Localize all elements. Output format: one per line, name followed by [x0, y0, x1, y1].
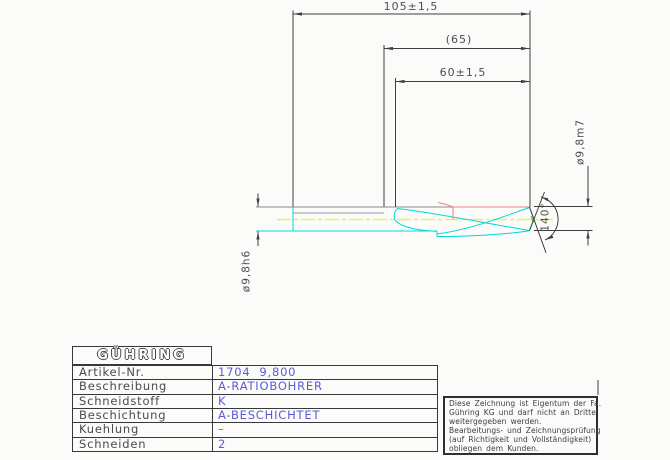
row-label-kuehlung: Kuehlung [73, 423, 213, 436]
row-label-schneiden: Schneiden [73, 438, 213, 451]
dim-flute-length: 60±1,5 [430, 67, 496, 79]
note-line: obliegen dem Kunden. [449, 445, 593, 454]
table-row: Schneiden 2 [73, 437, 437, 451]
row-value-beschreibung: A-RATIOBOHRER [213, 380, 437, 393]
row-value-beschichtung: A-BESCHICHTET [213, 409, 437, 422]
row-value-schneiden: 2 [213, 438, 437, 451]
row-value-artikel-nr: 1704 9,800 [213, 366, 437, 379]
row-value-schneidstoff: K [213, 395, 437, 408]
table-row: Schneidstoff K [73, 394, 437, 408]
row-label-beschichtung: Beschichtung [73, 409, 213, 422]
dim-tip-diameter: ø9,8m7 [575, 110, 587, 175]
row-label-schneidstoff: Schneidstoff [73, 395, 213, 408]
logo-box: GÜHRING [72, 346, 212, 365]
row-value-kuehlung: – [213, 423, 437, 436]
dim-overall-length: 105±1,5 [375, 1, 447, 13]
ownership-note-box: Diese Zeichnung ist Eigentum der Fa. Güh… [443, 396, 598, 455]
table-row: Beschichtung A-BESCHICHTET [73, 408, 437, 422]
table-row: Kuehlung – [73, 422, 437, 436]
dim-ref-length: (65) [437, 34, 481, 46]
guehring-logo: GÜHRING [97, 348, 187, 363]
dim-point-angle: 140° [540, 200, 552, 235]
dim-shank-diameter: ø9,8h6 [241, 239, 253, 304]
row-label-beschreibung: Beschreibung [73, 380, 213, 393]
drawing-sheet: 105±1,5 (65) 60±1,5 ø9,8m7 ø9,8h6 140° G… [0, 0, 670, 460]
row-label-artikel-nr: Artikel-Nr. [73, 366, 213, 379]
title-block-table: Artikel-Nr. 1704 9,800 Beschreibung A-RA… [72, 365, 438, 452]
table-row: Beschreibung A-RATIOBOHRER [73, 379, 437, 393]
table-row: Artikel-Nr. 1704 9,800 [73, 365, 437, 379]
